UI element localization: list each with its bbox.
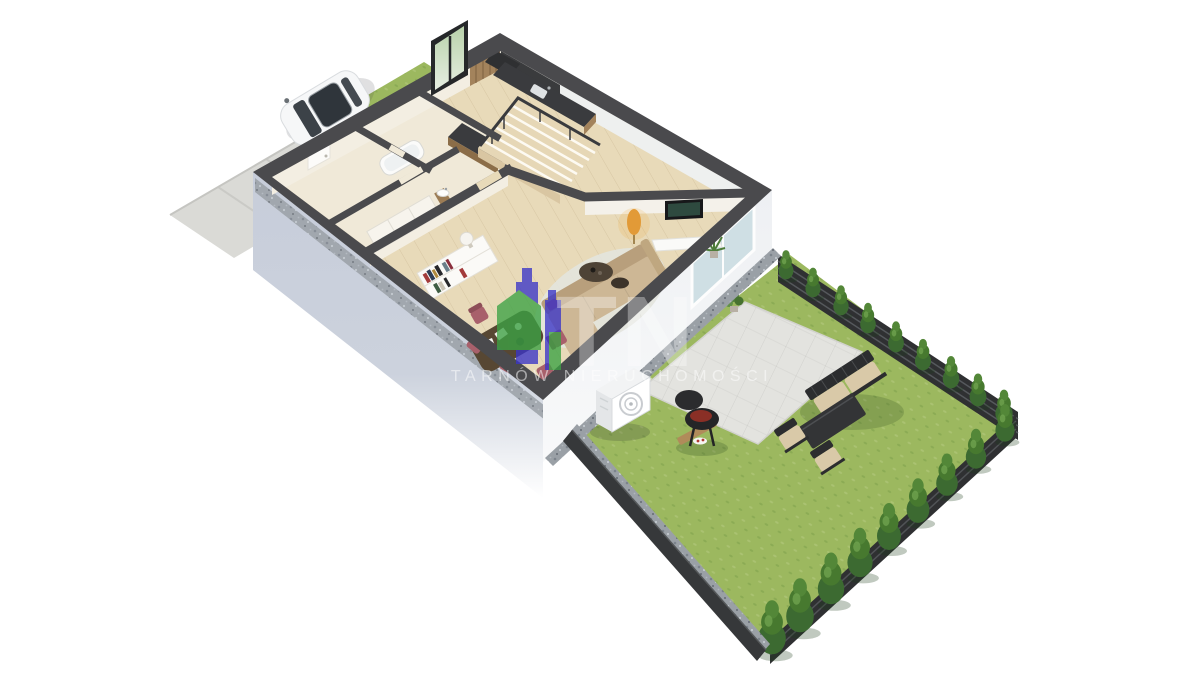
kitchen-faucet — [547, 86, 550, 89]
grill-lid-open — [675, 390, 703, 410]
grill-coals — [690, 410, 712, 422]
tv — [665, 199, 703, 220]
grill-plate — [693, 438, 707, 445]
floorplan-canvas: TN TARNÓW NIERUCHOMOŚCI — [0, 0, 1200, 674]
watermark-caption: TARNÓW NIERUCHOMOŚCI — [451, 366, 773, 385]
plant-pot — [710, 251, 718, 258]
door-handle — [325, 155, 328, 158]
floorplan-3d-render: TN TARNÓW NIERUCHOMOŚCI — [0, 0, 1200, 674]
